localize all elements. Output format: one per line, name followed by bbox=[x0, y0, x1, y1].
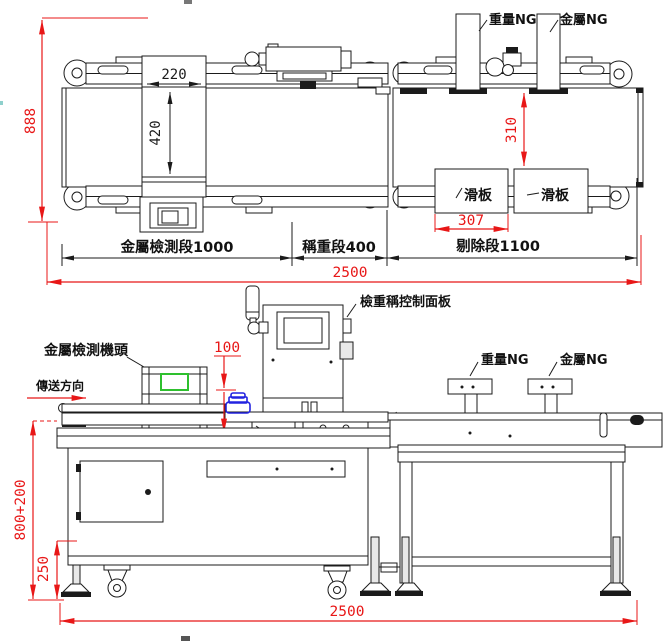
dim-888-label: 888 bbox=[23, 108, 39, 134]
control-panel: 檢重稱控制面板 bbox=[246, 286, 452, 432]
base-cabinet bbox=[57, 428, 402, 599]
convey-direction: 傳送方向 bbox=[27, 378, 86, 398]
metal-section-label: 金屬檢測段1000 bbox=[120, 238, 234, 256]
dim-800-200-label: 800+200 bbox=[13, 479, 29, 540]
weigh-section-label: 稱重段400 bbox=[302, 238, 376, 256]
dim-2500-bottom-label: 2500 bbox=[330, 604, 365, 620]
machine-drawing: 220 420 bbox=[0, 0, 668, 643]
reject-pushers-side: 重量NG 金屬NG bbox=[448, 352, 608, 413]
dim-2500-bottom: 2500 bbox=[60, 600, 637, 625]
weight-ng-label-side: 重量NG bbox=[481, 352, 529, 368]
reject-frame bbox=[395, 445, 631, 596]
dim-307-label: 307 bbox=[458, 213, 484, 229]
reject-section-label: 剔除段1100 bbox=[455, 237, 540, 255]
metal-ng-label-top: 金屬NG bbox=[559, 12, 608, 28]
side-view: 檢重稱控制面板 金屬檢測機頭 傳送方向 bbox=[13, 286, 662, 625]
page-tick-bottom bbox=[181, 636, 190, 641]
product-jar bbox=[226, 393, 250, 413]
dim-2500-top-label: 2500 bbox=[333, 265, 368, 281]
dim-310-label: 310 bbox=[504, 117, 520, 143]
metal-detector-head-label: 金屬檢測機頭 bbox=[43, 342, 129, 359]
metal-ng-label-side: 金屬NG bbox=[559, 352, 608, 368]
metal-detector-bridge-top: 220 420 bbox=[140, 56, 206, 232]
slide-plate-1-label: 滑板 bbox=[464, 187, 493, 204]
control-panel-label: 檢重稱控制面板 bbox=[360, 294, 452, 310]
dim-307: 307 bbox=[435, 213, 508, 232]
door-handle bbox=[145, 489, 151, 495]
page-tick-left bbox=[0, 101, 3, 105]
dim-100-label: 100 bbox=[214, 340, 240, 356]
weight-ng-label-top: 重量NG bbox=[489, 12, 537, 28]
dim-250-label: 250 bbox=[36, 556, 52, 582]
tower-light bbox=[246, 286, 259, 320]
top-view: 220 420 bbox=[23, 12, 643, 285]
convey-direction-label: 傳送方向 bbox=[35, 378, 84, 393]
dim-220-label: 220 bbox=[161, 67, 186, 83]
dim-420-label: 420 bbox=[148, 120, 164, 145]
page-tick-top bbox=[184, 0, 192, 4]
drawing-canvas: 220 420 bbox=[0, 0, 668, 643]
infeed-weigh-conveyor-top bbox=[62, 57, 388, 213]
slide-plate-2-label: 滑板 bbox=[541, 187, 570, 204]
